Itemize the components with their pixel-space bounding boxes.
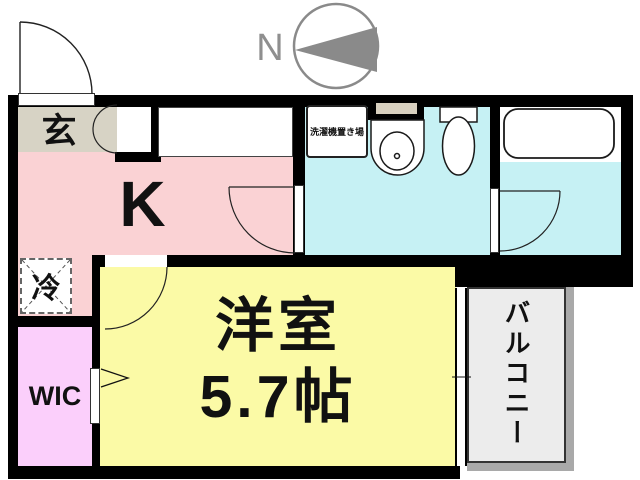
kitchen-door-leaf	[294, 185, 304, 253]
balcony-label: バルコニー	[498, 289, 535, 461]
refrigerator-label: 冷	[20, 258, 72, 314]
washer-area-box: 洗濯機置き場	[306, 105, 368, 158]
balcony-floor: バルコニー	[467, 287, 566, 463]
wall-bottom	[8, 466, 460, 479]
north-compass-icon	[294, 4, 378, 88]
wall-left	[8, 95, 18, 479]
entrance-label: 玄	[18, 104, 100, 152]
floor-plan: バルコニー	[0, 0, 640, 480]
kitchen-label: K	[100, 168, 185, 240]
north-label: N	[250, 24, 290, 72]
balcony: バルコニー	[467, 287, 574, 471]
kitchen-counter	[158, 107, 293, 157]
entrance-door-swing	[20, 22, 92, 94]
wic-label: WIC	[18, 327, 92, 466]
western-room-door-leaf	[105, 255, 167, 267]
western-room-size: 5.7帖	[199, 362, 356, 433]
balcony-sliding-window	[455, 288, 467, 466]
bathtub-area	[500, 107, 621, 162]
wall-wic-top	[18, 316, 100, 327]
bathroom-door-leaf	[490, 188, 499, 253]
vent-window	[376, 103, 417, 114]
western-room-name: 洋室	[215, 291, 341, 362]
wall-entry-horizontal	[115, 152, 161, 162]
wall-balcony-top	[455, 255, 633, 287]
western-room-label: 洋室 5.7帖	[100, 282, 456, 442]
wall-wic-right	[92, 262, 100, 466]
bathroom-floor	[500, 162, 621, 255]
washer-area-label: 洗濯機置き場	[310, 125, 364, 138]
